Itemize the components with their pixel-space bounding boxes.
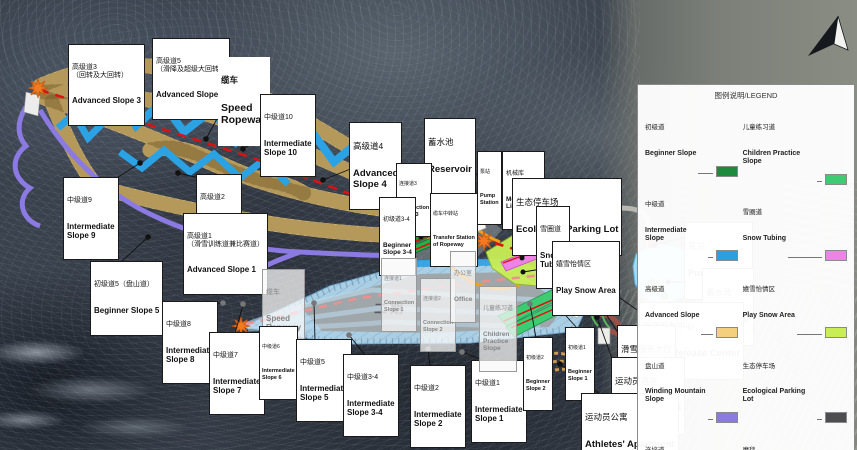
map-label-cn: 机械库 bbox=[506, 171, 541, 178]
map-label-en: Beginner Slope 2 bbox=[526, 379, 550, 391]
legend-item-en: Play Snow Area bbox=[743, 312, 795, 320]
map-label-cn: 中级道1 bbox=[475, 380, 523, 388]
map-label-beginner-slope-2: 初级道2 Beginner Slope 2 bbox=[523, 337, 553, 411]
legend-leader-line bbox=[817, 181, 822, 182]
map-label-intermediate-slope-3-4: 中级道3-4 Intermediate Slope 3-4 bbox=[343, 354, 399, 437]
map-label-cn: 中级道6 bbox=[262, 345, 295, 351]
legend-item-en: Snow Tubing bbox=[743, 235, 786, 243]
map-label-en: Intermediate Slope 7 bbox=[213, 378, 261, 396]
legend-item-cn: 雪圈道 bbox=[743, 209, 786, 216]
map-label-en: Pump Station bbox=[480, 193, 499, 205]
legend-item-ecological-parking-lot: 生态停车场 Ecological Parking Lot bbox=[743, 344, 847, 423]
map-label-cn: 缆车 bbox=[221, 76, 267, 86]
legend-item-en: Intermediate Slope bbox=[645, 227, 706, 243]
legend-item-winding-mountain-slope: 盘山道 Winding Mountain Slope bbox=[645, 344, 738, 423]
map-label-cn: 连接道2 bbox=[423, 297, 453, 303]
legend-item-en: Beginner Slope bbox=[645, 150, 696, 158]
map-label-en: Play Snow Area bbox=[556, 287, 616, 296]
map-label-cn: 高级道2 bbox=[200, 194, 238, 202]
legend-swatch bbox=[825, 327, 847, 338]
map-label-cn: 中级道7 bbox=[213, 352, 261, 360]
legend-swatch bbox=[825, 174, 847, 185]
map-label-en: Intermediate Slope 10 bbox=[264, 140, 312, 158]
map-label-connection-slope-1: 连接道1 Connection Slope 1 bbox=[381, 258, 417, 332]
map-label-office: 办公室 Office bbox=[450, 251, 476, 323]
map-label-beginner-slope-1: 初级道1 Beginner Slope 1 bbox=[565, 327, 595, 401]
legend-item-moving-carpet: 魔毯 Moving Carpet bbox=[743, 429, 847, 450]
map-label-en: Intermediate Slope 2 bbox=[414, 411, 462, 429]
north-arrow-icon bbox=[798, 12, 852, 69]
legend-item-connection-slope: 连接道 Connection Slope bbox=[645, 429, 738, 450]
legend-right-column: 儿童练习道 Children Practice Slope 雪圈道 Snow T… bbox=[743, 106, 847, 450]
legend-title: 图例说明/LEGEND bbox=[645, 90, 847, 101]
legend-item-en: Advanced Slope bbox=[645, 312, 699, 320]
map-label-cn: 初级道1 bbox=[568, 346, 592, 352]
legend-item-snow-tubing: 雪圈道 Snow Tubing bbox=[743, 191, 847, 262]
legend-item-beginner-slope: 初级道 Beginner Slope bbox=[645, 106, 738, 177]
legend-item-cn: 初级道 bbox=[645, 124, 696, 131]
map-label-pump-station-small: 泵站 Pump Station bbox=[477, 151, 502, 225]
map-label-cn: 儿童练习道 bbox=[483, 306, 513, 313]
map-label-cn: 初级道3-4 bbox=[383, 217, 412, 224]
map-label-cn: 高级道4 bbox=[353, 142, 398, 152]
map-label-cn: 初级道2 bbox=[526, 356, 550, 362]
map-label-en: Intermediate Slope 8 bbox=[166, 347, 214, 365]
map-label-cn: 缆车中转站 bbox=[433, 212, 475, 218]
map-label-cn: 中级道2 bbox=[414, 385, 462, 393]
legend-item-play-snow-area: 嬉雪怡情区 Play Snow Area bbox=[743, 267, 847, 338]
map-label-intermediate-slope-2: 中级道2 Intermediate Slope 2 bbox=[410, 365, 466, 448]
map-label-cn: 嬉雪怡情区 bbox=[556, 261, 616, 269]
map-label-en: Intermediate Slope 1 bbox=[475, 406, 523, 424]
map-label-cn: 连接道1 bbox=[384, 277, 414, 283]
map-label-en: Transfer Station of Ropeway bbox=[433, 235, 475, 247]
legend-leader-line bbox=[708, 257, 713, 258]
map-label-cn: 初级道5（盘山道） bbox=[94, 281, 159, 289]
map-label-en: Advanced Slope 1 bbox=[187, 266, 264, 275]
map-label-advanced-slope-3: 高级道3 （回转及大回转） Advanced Slope 3 bbox=[68, 44, 145, 126]
legend-leader-line bbox=[788, 257, 822, 258]
map-label-en: Advanced Slope 5 bbox=[156, 91, 226, 100]
map-label-intermediate-slope-6: 中级道6 Intermediate Slope 6 bbox=[259, 326, 298, 400]
legend-item-en: Ecological Parking Lot bbox=[743, 388, 815, 404]
legend-item-cn: 中级道 bbox=[645, 201, 706, 208]
legend: 图例说明/LEGEND 初级道 Beginner Slope 中级道 Inter… bbox=[637, 84, 855, 450]
map-label-en: Intermediate Slope 3-4 bbox=[347, 400, 395, 418]
map-label-children-practice-slope: 儿童练习道 Children Practice Slope bbox=[479, 286, 517, 372]
map-label-beginner-slope-5: 初级道5（盘山道） Beginner Slope 5 bbox=[90, 261, 163, 336]
map-label-cn: 中级道8 bbox=[166, 321, 214, 329]
legend-swatch bbox=[825, 250, 847, 261]
legend-left-column: 初级道 Beginner Slope 中级道 Intermediate Slop… bbox=[645, 106, 743, 450]
legend-item-advanced-slope: 高级道 Advanced Slope bbox=[645, 267, 738, 338]
map-label-cn: 蓄水池 bbox=[428, 138, 472, 148]
map-label-en: Intermediate Slope 5 bbox=[300, 385, 348, 403]
legend-leader-line bbox=[701, 334, 712, 335]
map-label-intermediate-slope-10: 中级道10 Intermediate Slope 10 bbox=[260, 94, 316, 177]
legend-leader-line bbox=[708, 419, 713, 420]
legend-item-en: Children Practice Slope bbox=[743, 150, 815, 166]
map-label-cn: 高级道1 （滑雪训练道兼比赛道） bbox=[187, 233, 264, 249]
map-label-cn: 中级道3-4 bbox=[347, 374, 395, 382]
map-label-cn: 办公室 bbox=[454, 271, 472, 278]
map-label-cn: 高级道5 （滑降及超级大回转） bbox=[156, 58, 226, 74]
legend-leader-line bbox=[817, 419, 822, 420]
map-label-cn: 中级道9 bbox=[67, 197, 115, 205]
legend-item-cn: 儿童练习道 bbox=[743, 124, 815, 131]
map-label-en: Intermediate Slope 6 bbox=[262, 368, 295, 380]
map-label-en: Advanced Slope 3 bbox=[72, 97, 141, 106]
map-label-play-snow-area: 嬉雪怡情区 Play Snow Area bbox=[552, 241, 620, 316]
legend-leader-line bbox=[797, 334, 822, 335]
legend-item-en: Winding Mountain Slope bbox=[645, 388, 706, 404]
legend-item-cn: 生态停车场 bbox=[743, 363, 815, 370]
legend-leader-line bbox=[698, 173, 712, 174]
legend-item-cn: 高级道 bbox=[645, 286, 699, 293]
map-label-cn: 中级道5 bbox=[300, 359, 348, 367]
legend-swatch bbox=[716, 327, 738, 338]
map-label-en: Connection Slope 2 bbox=[423, 320, 453, 332]
map-label-cn: 中级道10 bbox=[264, 114, 312, 122]
legend-swatch bbox=[716, 166, 738, 177]
map-label-cn: 高级道3 （回转及大回转） bbox=[72, 64, 141, 80]
map-label-en: Beginner Slope 3-4 bbox=[383, 242, 412, 257]
map-label-en: Advanced Slope 4 bbox=[353, 169, 398, 190]
legend-swatch bbox=[825, 412, 847, 423]
legend-item-intermediate-slope: 中级道 Intermediate Slope bbox=[645, 183, 738, 262]
map-label-en: Children Practice Slope bbox=[483, 331, 513, 353]
map-label-cn: 泵站 bbox=[480, 170, 499, 176]
map-label-intermediate-slope-1: 中级道1 Intermediate Slope 1 bbox=[471, 360, 527, 443]
map-label-en: Intermediate Slope 9 bbox=[67, 223, 115, 241]
map-label-en: Beginner Slope 1 bbox=[568, 369, 592, 381]
legend-item-cn: 嬉雪怡情区 bbox=[743, 286, 795, 293]
map-label-cn: 连接道3 bbox=[399, 182, 429, 188]
map-label-en: Reservoir bbox=[428, 165, 472, 176]
legend-item-children-practice-slope: 儿童练习道 Children Practice Slope bbox=[743, 106, 847, 185]
map-label-en: Office bbox=[454, 296, 472, 303]
map-label-advanced-slope-1: 高级道1 （滑雪训练道兼比赛道） Advanced Slope 1 bbox=[183, 213, 268, 295]
legend-swatch bbox=[716, 250, 738, 261]
map-label-intermediate-slope-7: 中级道7 Intermediate Slope 7 bbox=[209, 332, 265, 415]
map-label-en: Beginner Slope 5 bbox=[94, 307, 159, 316]
legend-swatch bbox=[716, 412, 738, 423]
ski-resort-map: 二期 高级道3 （回转及大回转） Advanced Slope 3 高级道5 （… bbox=[0, 0, 857, 450]
legend-item-cn: 盘山道 bbox=[645, 363, 706, 370]
map-label-cn: 雪圈道 bbox=[540, 226, 566, 234]
map-label-en: Connection Slope 1 bbox=[384, 300, 414, 312]
map-label-intermediate-slope-9: 中级道9 Intermediate Slope 9 bbox=[63, 177, 119, 260]
map-label-cn: 缆车 bbox=[266, 289, 301, 297]
